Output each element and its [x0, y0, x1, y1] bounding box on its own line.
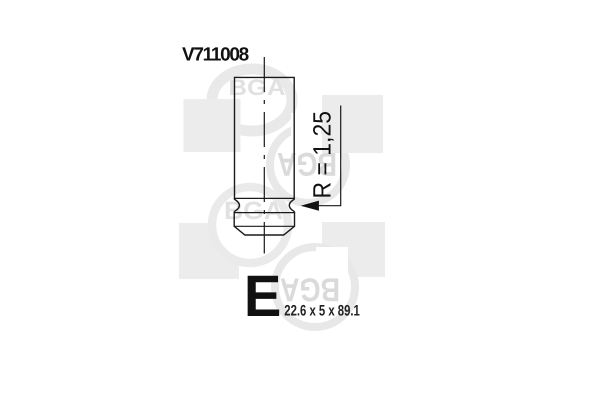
svg-text:V711008: V711008: [182, 45, 249, 66]
svg-text:R = 1,25: R = 1,25: [309, 111, 337, 199]
svg-text:E: E: [244, 264, 282, 329]
svg-text:BGA: BGA: [224, 197, 283, 225]
svg-text:BGA: BGA: [229, 75, 286, 100]
svg-text:22.6 x 5 x 89.1: 22.6 x 5 x 89.1: [284, 303, 360, 320]
